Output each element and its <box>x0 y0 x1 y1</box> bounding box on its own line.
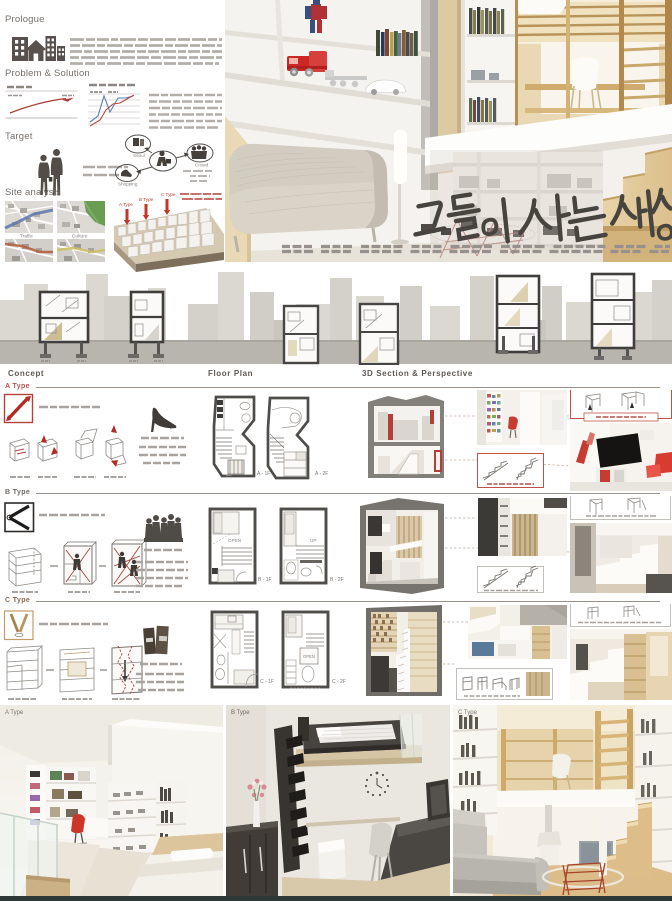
svg-text:C - 1F: C - 1F <box>260 679 274 685</box>
svg-text:B Type: B Type <box>231 710 250 716</box>
svg-text:Culture: Culture <box>72 234 88 240</box>
svg-text:Seoul: Seoul <box>133 153 145 158</box>
svg-text:C Type: C Type <box>458 710 478 716</box>
svg-text:OPEN: OPEN <box>303 654 315 659</box>
svg-text:C - 2F: C - 2F <box>332 679 346 685</box>
svg-text:Traffic: Traffic <box>20 234 34 240</box>
svg-text:C Type: C Type <box>161 192 176 197</box>
svg-text:A Type: A Type <box>5 710 24 716</box>
svg-text:Crowd: Crowd <box>195 163 209 168</box>
svg-text:A - 2F: A - 2F <box>315 471 328 477</box>
svg-text:B - 1F: B - 1F <box>258 577 272 583</box>
svg-text:B Type: B Type <box>139 197 154 202</box>
svg-text:B - 2F: B - 2F <box>330 577 344 583</box>
svg-text:A Type: A Type <box>119 202 133 207</box>
svg-text:Shopping: Shopping <box>118 182 138 187</box>
svg-text:UP: UP <box>310 538 316 543</box>
svg-text:A - 1F: A - 1F <box>257 471 270 477</box>
svg-text:OPEN: OPEN <box>228 538 241 543</box>
